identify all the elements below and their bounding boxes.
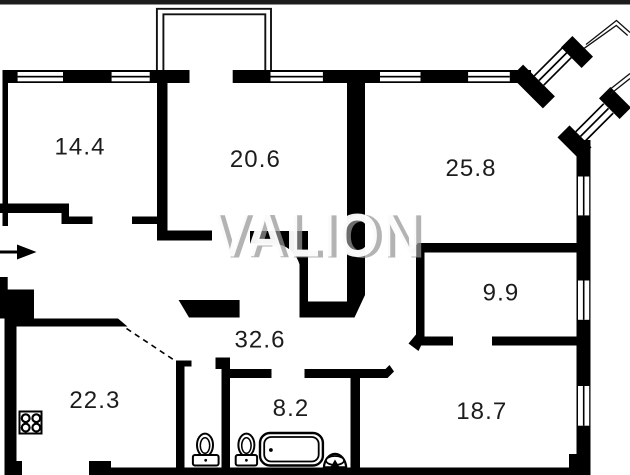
- svg-text:VALION: VALION: [211, 202, 420, 271]
- svg-text:20.6: 20.6: [230, 146, 281, 173]
- svg-text:18.7: 18.7: [456, 398, 507, 425]
- svg-text:25.8: 25.8: [445, 155, 496, 182]
- svg-text:22.3: 22.3: [69, 387, 120, 414]
- svg-text:8.2: 8.2: [273, 395, 310, 422]
- svg-text:9.9: 9.9: [483, 280, 520, 307]
- svg-text:14.4: 14.4: [54, 134, 105, 161]
- svg-text:32.6: 32.6: [234, 327, 285, 354]
